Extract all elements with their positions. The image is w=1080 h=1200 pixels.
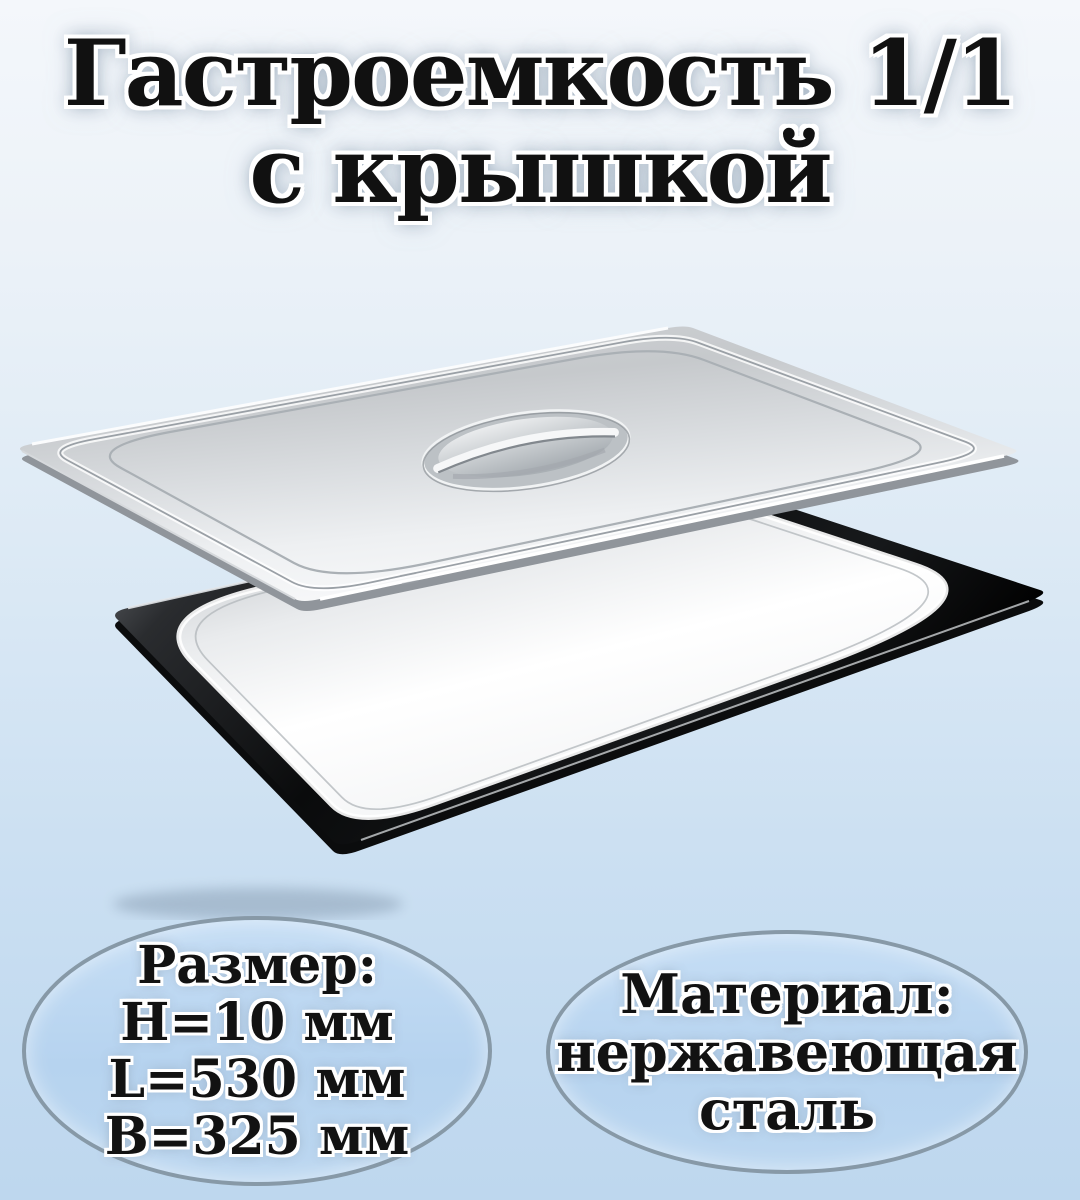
material-badge: Материал: нержавеющая сталь xyxy=(546,930,1028,1174)
material-line-1: нержавеющая xyxy=(556,1023,1018,1081)
size-badge: Размер: H=10 мм L=530 мм B=325 мм xyxy=(22,916,492,1186)
size-length: L=530 мм xyxy=(108,1051,405,1108)
material-line-2: сталь xyxy=(699,1081,875,1139)
size-heading: Размер: xyxy=(137,937,377,994)
title-line-1: Гастроемкость 1/1 xyxy=(64,21,1016,127)
page-title: Гастроемкость 1/1 с крышкой xyxy=(0,26,1080,220)
title-line-2: с крышкой xyxy=(249,118,830,224)
size-width: B=325 мм xyxy=(105,1108,410,1165)
size-height: H=10 мм xyxy=(120,994,394,1051)
product-card: Гастроемкость 1/1 с крышкой xyxy=(0,0,1080,1200)
product-photo xyxy=(0,280,1080,920)
material-heading: Материал: xyxy=(620,965,953,1023)
